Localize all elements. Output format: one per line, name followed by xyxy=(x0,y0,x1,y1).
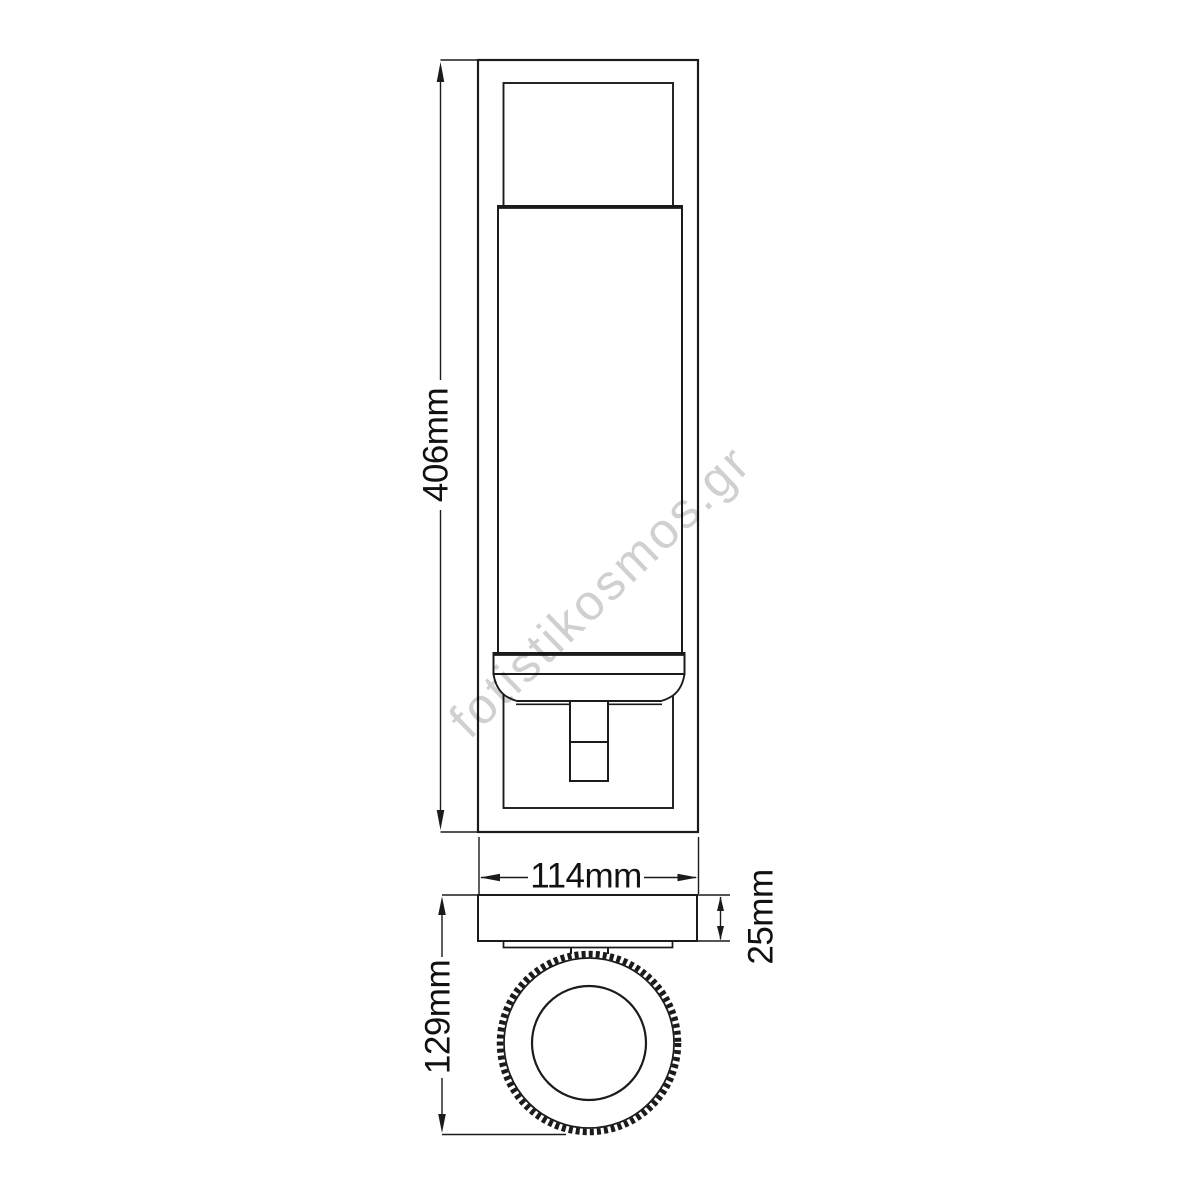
arrow-up-icon xyxy=(438,897,446,916)
technical-drawing-canvas: 406mm 114mm 129mm 25mm fotistikosmos.gr xyxy=(0,0,1200,1200)
depth-dimension-label: 25mm xyxy=(744,869,779,964)
depth-dimension xyxy=(717,897,724,941)
top-view xyxy=(442,895,730,1132)
height-dimension-label: 406mm xyxy=(419,388,454,502)
width-dimension-label: 114mm xyxy=(530,859,642,894)
arrow-right-icon xyxy=(678,874,698,882)
arrow-up-icon xyxy=(437,62,445,82)
arrow-down-icon xyxy=(438,1114,446,1133)
backplate xyxy=(478,895,697,941)
arrow-up-icon xyxy=(717,897,724,912)
projection-dimension-label: 129mm xyxy=(421,960,456,1074)
candle-stem xyxy=(570,701,608,781)
arrow-down-icon xyxy=(717,926,724,940)
arrow-left-icon xyxy=(480,874,500,882)
arrow-down-icon xyxy=(437,810,445,830)
cylinder-outline xyxy=(504,958,674,1128)
